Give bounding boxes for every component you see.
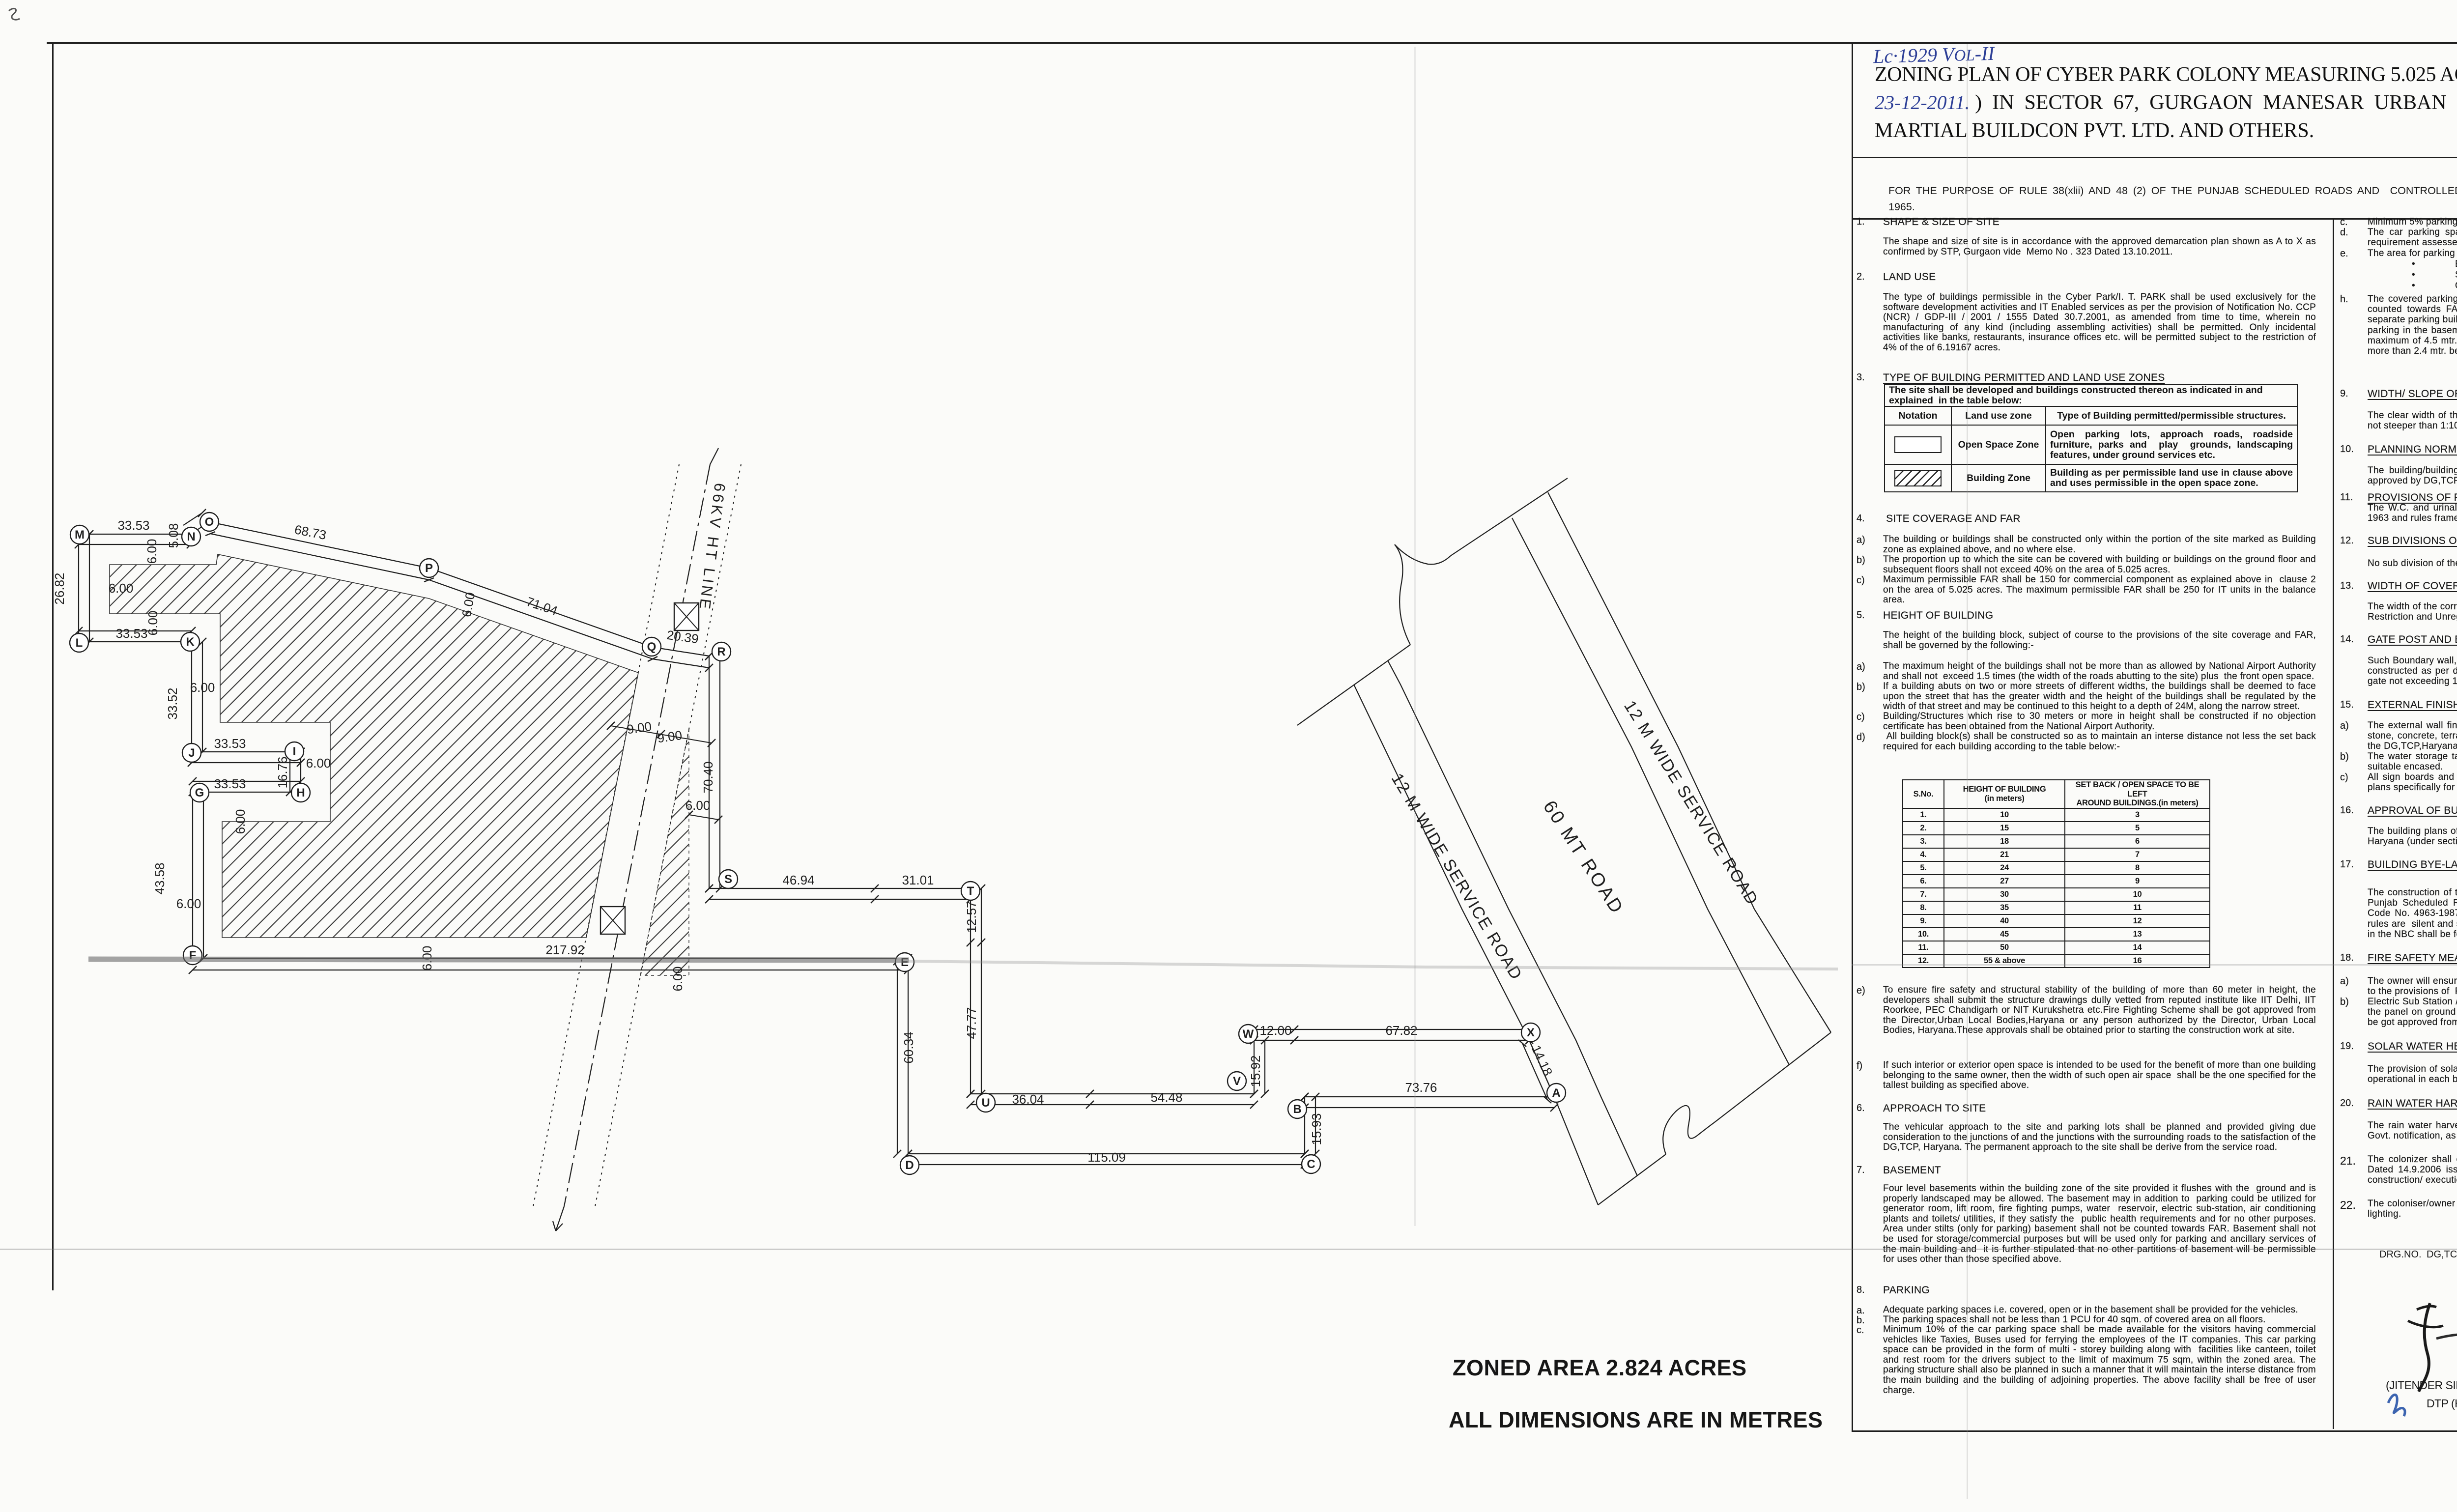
svg-text:33.53: 33.53 xyxy=(117,518,149,533)
svg-text:46.94: 46.94 xyxy=(782,873,814,887)
svg-text:G: G xyxy=(195,786,204,799)
svg-text:L: L xyxy=(76,636,83,650)
svg-text:V: V xyxy=(1233,1075,1241,1088)
svg-text:71.04: 71.04 xyxy=(524,594,559,619)
svg-text:33.53: 33.53 xyxy=(214,776,246,791)
svg-text:15.92: 15.92 xyxy=(1248,1055,1263,1087)
svg-text:6.00: 6.00 xyxy=(233,809,248,834)
svg-text:60.34: 60.34 xyxy=(901,1031,916,1063)
svg-text:67.82: 67.82 xyxy=(1385,1023,1417,1038)
svg-text:Q: Q xyxy=(647,640,657,654)
svg-text:S: S xyxy=(724,873,732,886)
svg-text:W: W xyxy=(1243,1027,1254,1041)
svg-text:16.76: 16.76 xyxy=(275,756,290,788)
svg-text:I: I xyxy=(293,745,296,758)
svg-text:X: X xyxy=(1527,1026,1535,1039)
svg-text:33.53: 33.53 xyxy=(214,736,246,751)
svg-text:33.53: 33.53 xyxy=(115,626,147,641)
svg-text:36.04: 36.04 xyxy=(1012,1092,1044,1107)
svg-text:6.00: 6.00 xyxy=(190,680,215,695)
svg-text:68.73: 68.73 xyxy=(293,522,328,542)
svg-text:P: P xyxy=(425,562,433,575)
svg-text:12.57: 12.57 xyxy=(964,901,979,933)
svg-text:B: B xyxy=(1293,1103,1301,1116)
svg-text:6.00: 6.00 xyxy=(459,591,478,618)
svg-text:O: O xyxy=(205,515,214,529)
svg-text:33.52: 33.52 xyxy=(165,687,180,719)
svg-text:M: M xyxy=(75,528,85,542)
svg-text:R: R xyxy=(717,645,725,658)
svg-text:9.00: 9.00 xyxy=(626,719,653,737)
svg-text:66KV HT LINE: 66KV HT LINE xyxy=(696,482,729,612)
svg-text:T: T xyxy=(967,884,974,898)
svg-text:6.00: 6.00 xyxy=(144,539,159,564)
svg-text:47.77: 47.77 xyxy=(964,1007,979,1039)
svg-text:15.93: 15.93 xyxy=(1309,1113,1324,1145)
svg-text:5.08: 5.08 xyxy=(166,523,181,548)
svg-text:6.00: 6.00 xyxy=(176,896,201,911)
svg-text:N: N xyxy=(187,530,195,543)
svg-text:D: D xyxy=(905,1159,914,1172)
svg-text:U: U xyxy=(981,1096,990,1110)
svg-text:14.18: 14.18 xyxy=(1529,1043,1556,1078)
svg-text:26.82: 26.82 xyxy=(52,572,67,604)
svg-text:31.01: 31.01 xyxy=(902,873,934,887)
svg-text:6.00: 6.00 xyxy=(306,756,331,770)
svg-text:K: K xyxy=(186,635,195,649)
svg-text:217.92: 217.92 xyxy=(545,942,585,957)
svg-text:9.00: 9.00 xyxy=(657,728,683,746)
svg-text:115.09: 115.09 xyxy=(1087,1150,1126,1165)
svg-text:54.48: 54.48 xyxy=(1150,1090,1182,1105)
svg-text:70.40: 70.40 xyxy=(701,761,715,793)
svg-text:6.00: 6.00 xyxy=(109,581,134,596)
svg-text:A: A xyxy=(1552,1086,1560,1100)
svg-text:J: J xyxy=(188,746,195,760)
svg-text:C: C xyxy=(1307,1158,1315,1171)
svg-text:43.58: 43.58 xyxy=(152,862,167,894)
svg-text:12 M WIDE SERVICE ROAD: 12 M WIDE SERVICE ROAD xyxy=(1620,697,1762,909)
svg-text:6.00: 6.00 xyxy=(670,967,685,992)
svg-text:H: H xyxy=(296,786,305,799)
svg-text:73.76: 73.76 xyxy=(1405,1080,1437,1095)
svg-text:12.00: 12.00 xyxy=(1259,1023,1291,1038)
svg-text:60 MT ROAD: 60 MT ROAD xyxy=(1539,797,1628,918)
svg-text:6.00: 6.00 xyxy=(686,798,711,813)
